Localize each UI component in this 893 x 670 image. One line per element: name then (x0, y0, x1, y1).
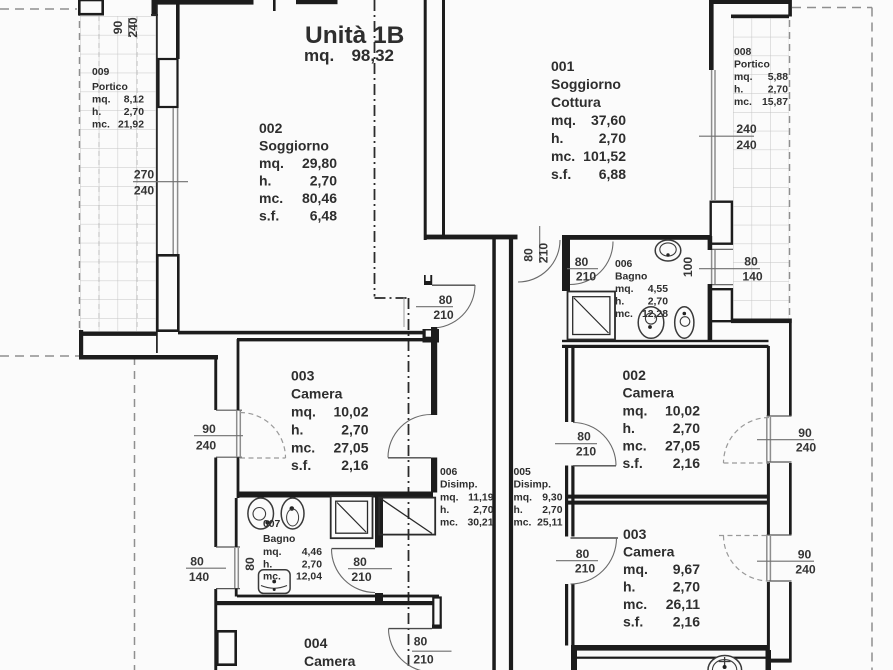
svg-text:2,70: 2,70 (768, 85, 788, 96)
svg-text:h.: h. (615, 297, 624, 308)
svg-text:27,05: 27,05 (665, 438, 700, 454)
svg-text:mq.: mq. (92, 95, 111, 106)
svg-text:80: 80 (744, 255, 758, 269)
svg-text:mc.: mc. (440, 518, 458, 529)
svg-text:001: 001 (551, 58, 575, 74)
svg-text:009: 009 (92, 67, 110, 78)
svg-text:Cottura: Cottura (551, 94, 601, 110)
svg-text:210: 210 (575, 562, 596, 576)
svg-text:2,70: 2,70 (302, 560, 322, 571)
svg-text:h.: h. (259, 173, 271, 189)
svg-text:2,16: 2,16 (341, 457, 368, 473)
svg-text:mq.: mq. (259, 155, 284, 171)
svg-text:Portico: Portico (92, 82, 128, 93)
svg-text:007: 007 (263, 519, 281, 530)
svg-text:80: 80 (190, 555, 204, 569)
svg-text:240: 240 (134, 184, 155, 198)
svg-text:240: 240 (795, 563, 816, 577)
svg-text:140: 140 (189, 570, 210, 584)
svg-text:4,55: 4,55 (648, 284, 668, 295)
svg-text:mq.: mq. (734, 72, 753, 83)
svg-text:Portico: Portico (734, 60, 770, 71)
svg-text:2,70: 2,70 (673, 420, 700, 436)
svg-text:240: 240 (736, 138, 757, 152)
svg-text:mq.: mq. (615, 284, 634, 295)
svg-text:h.: h. (551, 130, 563, 146)
svg-text:240: 240 (736, 122, 757, 136)
svg-text:90: 90 (798, 426, 812, 440)
svg-text:11,19: 11,19 (468, 493, 494, 504)
svg-text:5,88: 5,88 (768, 72, 788, 83)
svg-text:2,70: 2,70 (599, 130, 626, 146)
svg-text:003: 003 (623, 526, 647, 542)
svg-text:2,16: 2,16 (673, 455, 700, 471)
svg-text:mc.: mc. (623, 596, 647, 612)
svg-text:100: 100 (681, 257, 695, 278)
svg-text:mc.: mc. (259, 190, 283, 206)
svg-text:2,70: 2,70 (542, 505, 562, 516)
svg-text:6,48: 6,48 (310, 208, 337, 224)
svg-text:240: 240 (796, 441, 817, 455)
svg-text:h.: h. (623, 579, 635, 595)
svg-text:s.f.: s.f. (623, 455, 643, 471)
svg-text:003: 003 (291, 368, 315, 384)
svg-text:10,02: 10,02 (665, 403, 700, 419)
svg-text:10,02: 10,02 (333, 404, 368, 420)
svg-text:90: 90 (202, 422, 216, 436)
svg-text:25,11: 25,11 (537, 518, 563, 529)
svg-text:mc.: mc. (623, 438, 647, 454)
svg-text:15,87: 15,87 (762, 97, 788, 108)
svg-text:101,52: 101,52 (583, 148, 626, 164)
svg-text:s.f.: s.f. (623, 614, 643, 630)
svg-text:12,04: 12,04 (296, 572, 322, 583)
svg-text:6,88: 6,88 (599, 166, 626, 182)
svg-text:2,16: 2,16 (673, 614, 700, 630)
svg-text:270: 270 (134, 168, 155, 182)
svg-text:37,60: 37,60 (591, 112, 626, 128)
svg-text:mc.: mc. (551, 148, 575, 164)
svg-text:mc.: mc. (263, 572, 281, 583)
svg-text:80: 80 (439, 293, 453, 307)
svg-text:002: 002 (259, 120, 283, 136)
svg-text:2,70: 2,70 (648, 297, 668, 308)
svg-text:h.: h. (263, 560, 272, 571)
svg-text:2,70: 2,70 (341, 422, 368, 438)
svg-text:Camera: Camera (623, 385, 675, 401)
svg-text:210: 210 (351, 570, 372, 584)
svg-text:s.f.: s.f. (291, 457, 311, 473)
svg-text:2,70: 2,70 (473, 505, 493, 516)
svg-text:Soggiorno: Soggiorno (551, 76, 621, 92)
svg-text:mq.: mq. (304, 46, 334, 65)
svg-text:80: 80 (353, 555, 367, 569)
svg-text:mc.: mc. (514, 518, 532, 529)
svg-text:002: 002 (623, 367, 647, 383)
svg-text:26,11: 26,11 (666, 596, 700, 612)
svg-text:s.f.: s.f. (259, 208, 279, 224)
svg-text:2,70: 2,70 (673, 579, 700, 595)
svg-text:80: 80 (522, 248, 536, 262)
svg-text:006: 006 (615, 259, 633, 270)
svg-text:Disimp.: Disimp. (514, 480, 552, 491)
svg-text:210: 210 (537, 243, 551, 264)
svg-text:mq.: mq. (291, 404, 316, 420)
svg-text:mc.: mc. (615, 309, 633, 320)
svg-text:240: 240 (126, 17, 140, 38)
svg-text:80,46: 80,46 (302, 190, 337, 206)
svg-text:80: 80 (576, 547, 590, 561)
svg-text:210: 210 (413, 653, 434, 667)
svg-text:mq.: mq. (440, 493, 459, 504)
svg-text:9,30: 9,30 (542, 493, 562, 504)
svg-text:21,92: 21,92 (118, 120, 144, 131)
svg-text:12,28: 12,28 (642, 309, 668, 320)
svg-text:mq.: mq. (514, 493, 533, 504)
svg-text:8,12: 8,12 (124, 95, 144, 106)
svg-text:27,05: 27,05 (333, 440, 368, 456)
svg-text:004: 004 (304, 635, 328, 651)
svg-text:140: 140 (742, 270, 763, 284)
svg-text:h.: h. (514, 505, 523, 516)
svg-text:80: 80 (577, 430, 591, 444)
svg-text:mq.: mq. (623, 561, 648, 577)
svg-text:Bagno: Bagno (263, 534, 295, 545)
svg-text:mq.: mq. (623, 403, 648, 419)
svg-text:Camera: Camera (304, 653, 356, 669)
svg-text:9,67: 9,67 (673, 561, 700, 577)
svg-text:006: 006 (440, 467, 458, 478)
svg-text:Bagno: Bagno (615, 272, 647, 283)
svg-text:80: 80 (575, 255, 589, 269)
svg-text:s.f.: s.f. (551, 166, 571, 182)
svg-text:h.: h. (623, 420, 635, 436)
svg-text:h.: h. (291, 422, 303, 438)
svg-text:Soggiorno: Soggiorno (259, 138, 329, 154)
svg-text:008: 008 (734, 47, 752, 58)
svg-text:mc.: mc. (291, 440, 315, 456)
svg-text:240: 240 (196, 439, 217, 453)
svg-text:4,46: 4,46 (302, 547, 322, 558)
svg-text:2,70: 2,70 (124, 107, 144, 118)
svg-text:h.: h. (734, 85, 743, 96)
svg-text:30,21: 30,21 (467, 518, 493, 529)
svg-text:Camera: Camera (291, 386, 343, 402)
svg-text:005: 005 (514, 467, 532, 478)
svg-text:mq.: mq. (551, 112, 576, 128)
svg-text:80: 80 (243, 557, 257, 571)
svg-text:Disimp.: Disimp. (440, 480, 478, 491)
svg-text:mc.: mc. (734, 97, 752, 108)
svg-text:Camera: Camera (623, 544, 675, 560)
svg-text:h.: h. (92, 107, 101, 118)
svg-text:mq.: mq. (263, 547, 282, 558)
svg-text:2,70: 2,70 (310, 173, 337, 189)
svg-text:29,80: 29,80 (302, 155, 337, 171)
svg-text:210: 210 (576, 270, 597, 284)
svg-text:h.: h. (440, 505, 449, 516)
svg-text:90: 90 (111, 21, 125, 35)
svg-text:90: 90 (798, 548, 812, 562)
svg-text:Unità 1B: Unità 1B (305, 22, 404, 49)
svg-text:80: 80 (414, 635, 428, 649)
svg-text:210: 210 (576, 445, 597, 459)
svg-text:mc.: mc. (92, 120, 110, 131)
svg-text:98,32: 98,32 (351, 46, 394, 65)
svg-text:210: 210 (433, 308, 454, 322)
